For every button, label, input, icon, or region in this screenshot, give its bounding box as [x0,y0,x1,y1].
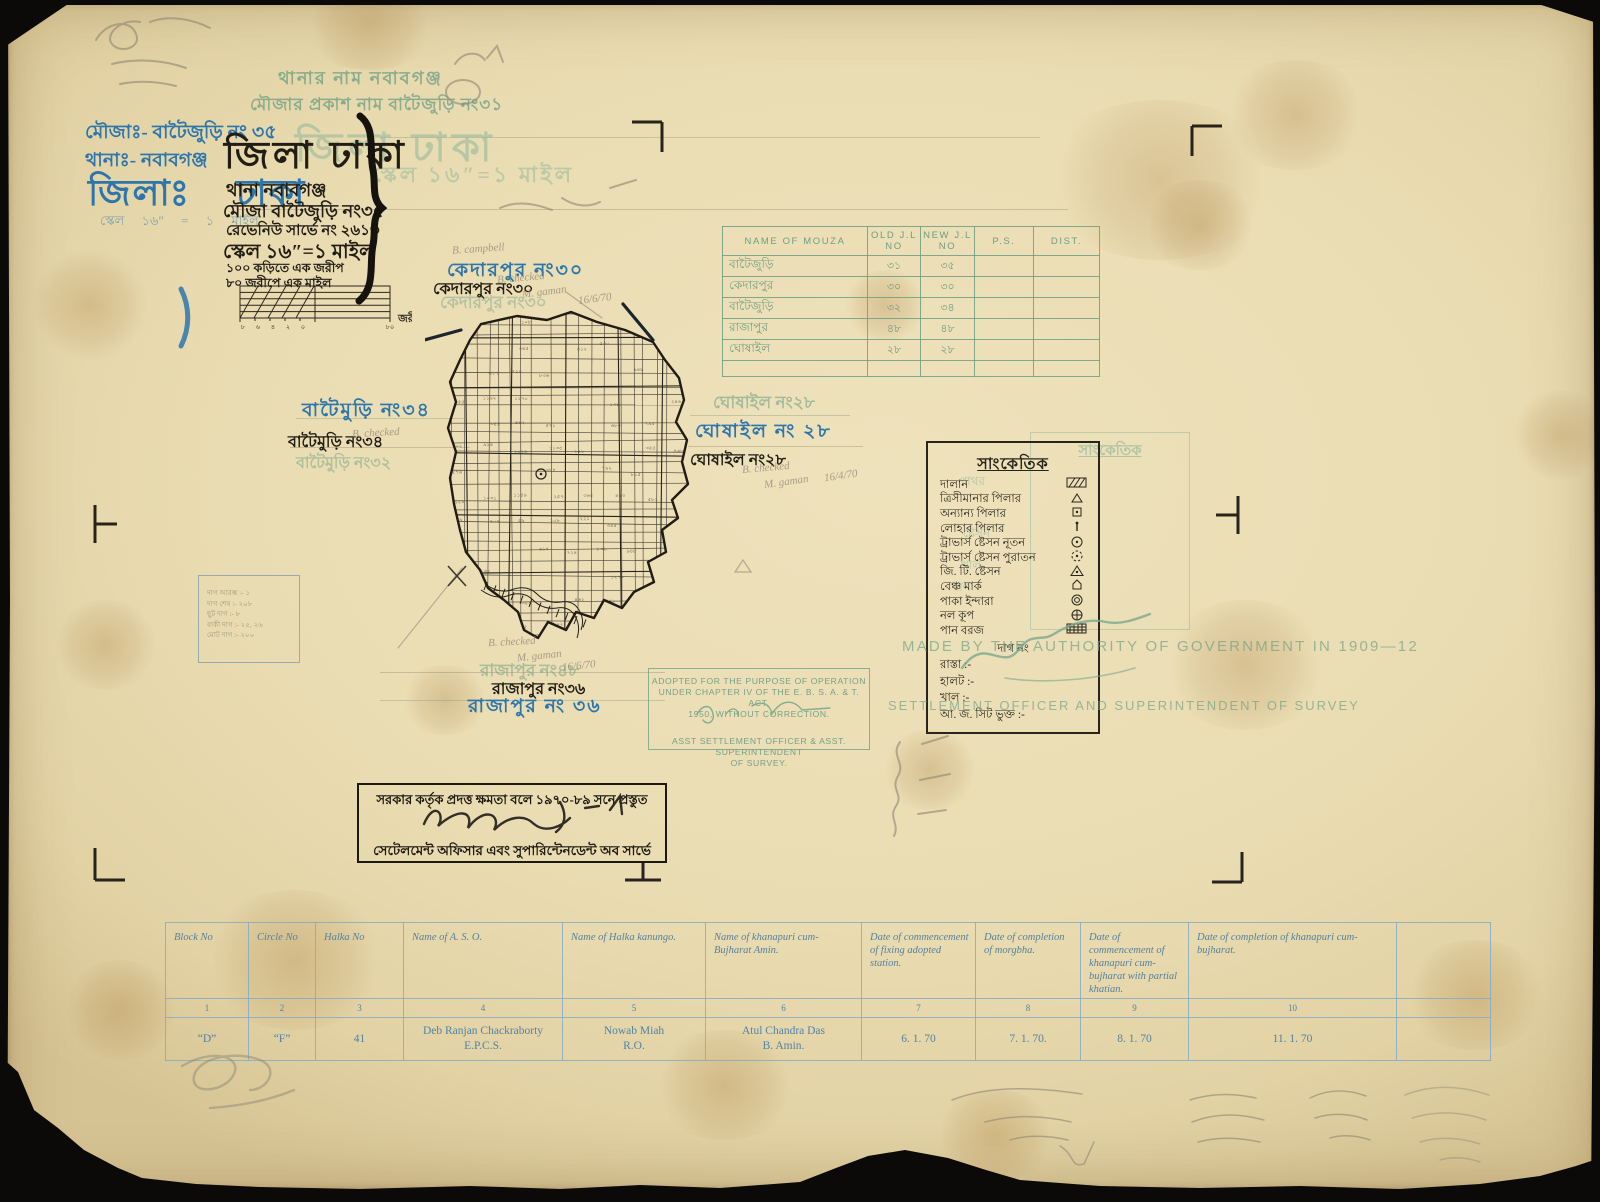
jl-number-cell: ৩৪ [921,298,975,319]
progress-table-header: Name of A. S. O. [404,923,563,999]
svg-text:৮৩৬: ৮৩৬ [539,373,550,379]
jl-number-cell: ২৮ [921,340,975,361]
jl-number-cell [1034,277,1100,298]
west-mouza-label-green: বাটৈমুড়ি নং৩২ [296,450,391,477]
jl-number-cell [975,340,1034,361]
stain [30,250,150,360]
mouza-table-row: কেদারপুর৩০৩০ [723,277,1100,298]
progress-table-colnum: 6 [706,999,862,1018]
progress-table-header: Date of commencement of khanapuri cum-bu… [1081,923,1189,999]
adopted-line: 1950, WITHOUT CORRECTION. [649,709,869,720]
svg-text:৫৩০: ৫৩০ [453,551,463,557]
stain [880,730,980,810]
svg-text:২৪৬: ২৪৬ [488,598,499,604]
mouza-jl-table: NAME OF MOUZAOLD J.L NONEW J.L NOP.S.DIS… [722,226,1100,377]
svg-text:৬১৭: ৬১৭ [539,546,549,552]
scalebar-tick: ৮ [241,324,246,331]
progress-table-value: “F” [249,1018,316,1061]
svg-text:৫৯: ৫৯ [453,318,460,324]
mouza-name-cell: ঘোষাইল [723,340,868,361]
mouza-table-header: NAME OF MOUZA [723,227,868,256]
jl-number-cell [975,361,1034,377]
scalebar-tick: ৪ [271,324,275,331]
svg-text:২৪৬: ২৪৬ [671,399,682,405]
mouza-table-row: বাটৈজুড়ি৩২৩৪ [723,298,1100,319]
svg-text:৯১৪: ৯১৪ [571,627,581,633]
jl-number-cell [975,256,1034,277]
jl-number-cell [1034,340,1100,361]
svg-text:৩৬৫: ৩৬৫ [583,493,593,499]
progress-table-colnum: 9 [1081,999,1189,1018]
svg-text:৫৩০: ৫৩০ [599,341,609,347]
jl-number-cell: ৪৮ [921,319,975,340]
svg-text:১১৩৪: ১১৩৪ [549,446,562,452]
progress-table-colnum: 8 [976,999,1081,1018]
svg-text:১০৩১: ১০৩১ [483,495,496,501]
svg-text:৯৪৮: ৯৪৮ [634,367,645,373]
svg-text:৬১৭: ৬১৭ [488,370,498,376]
legend-footer-line: রাস্তা :- [940,657,1086,674]
survey-progress-table: Block NoCircle NoHalka NoName of A. S. O… [165,922,1490,1061]
progress-table-value: 7. 1. 70. [976,1018,1081,1061]
mouza-name-cell [723,361,868,377]
adopted-line: ASST SETTLEMENT OFFICER & ASST. SUPERINT… [649,736,869,758]
jl-number-cell [975,319,1034,340]
mouza-table-row: রাজাপুর৪৮৪৮ [723,319,1100,340]
jl-number-cell: ৪৮ [868,319,921,340]
mouza-name-cell: বাটৈজুড়ি [723,298,868,319]
svg-text:৬৮৩: ৬৮৩ [453,623,464,629]
svg-text:৩৫৫: ৩৫৫ [646,445,656,451]
svg-text:১০৮: ১০৮ [521,319,532,325]
plot-note-line: বাকী দাগ :- ২৫, ২৬ [199,620,299,631]
svg-text:৫৮১: ৫৮১ [648,497,658,503]
jl-number-cell [1034,256,1100,277]
svg-text:১১৬২: ১১৬২ [483,396,496,402]
thana-name-green-stamp: থানার নাম নবাবগঞ্জ [278,64,443,95]
progress-table-value: 41 [316,1018,404,1061]
stain [1140,180,1260,270]
svg-text:৪৬২: ৪৬২ [574,597,584,603]
progress-table-colnum [1397,999,1491,1018]
svg-text:২২১: ২২১ [580,516,590,522]
mouza-table-header: DIST. [1034,227,1100,256]
mouza-table-header: P.S. [975,227,1034,256]
svg-text:৫৭৬: ৫৭৬ [452,470,463,476]
scanned-cadastral-map-sheet: থানার নাম নবাবগঞ্জ মৌজার প্রকাশ নাম বাটৈ… [0,0,1600,1202]
svg-text:১৩৮: ১৩৮ [674,575,685,581]
progress-table-colnum: 5 [563,999,706,1018]
jl-number-cell [975,277,1034,298]
plot-note-line: দাগ আরম্ভ :- ১ [199,588,299,599]
jl-number-cell: ৩১ [868,256,921,277]
jl-number-cell [921,361,975,377]
svg-text:১২৭০: ১২৭০ [514,396,528,402]
progress-table-colnum: 3 [316,999,404,1018]
svg-text:১২৭০: ১২৭০ [611,574,625,580]
legend-item: পান বরজ [928,624,1098,639]
jl-number-cell: ৩৫ [921,256,975,277]
svg-text:৯১৪: ৯১৪ [483,442,493,448]
svg-text:৭২৪: ৭২৪ [567,550,577,556]
progress-table-header: Halka No [316,923,404,999]
diagonal-scale-bar: ৮ ৬ ৪ ২ ০ ৮০ জরীপ [232,280,412,332]
svg-text:৮১৫: ৮১৫ [631,472,641,478]
cadastral-plot-map: ৫৯১০৮২২১৩৪৫৪১২৫৩০৬১৭৭২৪৮৩৬৯৪৮১০৫৫১১৬২১২৭… [425,298,695,663]
progress-table-colnum: 7 [862,999,976,1018]
stain [1510,390,1600,480]
progress-table-header: Name of Halka kanungo. [563,923,706,999]
plot-note-line: দাগ শেষ :- ২০৮ [199,599,299,610]
progress-table-value: Deb Ranjan Chackraborty E.P.C.S. [404,1018,563,1061]
svg-text:৩৪৫: ৩৪৫ [607,523,617,529]
scalebar-tick: ৮০ [386,324,394,331]
blackbox-line2: সেটেলমেন্ট অফিসার এবং সুপারিন্টেনডেন্ট অ… [359,840,665,863]
svg-text:৪৭৩: ৪৭৩ [615,493,626,499]
svg-text:৯৪৮: ৯৪৮ [626,548,637,554]
scalebar-tick: ২ [286,324,290,331]
scalebar-tick: ০ [301,324,305,331]
progress-table-header: Date of completion of morgbha. [976,923,1081,999]
stain [50,600,160,690]
progress-table-colnum: 4 [404,999,563,1018]
blackbox-line1: সরকার কর্তৃক প্রদত্ত ক্ষমতা বলে ১৯৭০-৮৯ … [359,791,665,812]
svg-text:৫৭১: ৫৭১ [546,423,556,429]
adopted-line: ADOPTED FOR THE PURPOSE OF OPERATION [649,676,869,687]
plot-note-line: মোট দাগ :- ২০০ [199,630,299,641]
pencil-annotation: B. checked [352,426,400,440]
scalebar-label: জরীপ [397,311,412,325]
government-power-stamp-box: সরকার কর্তৃক প্রদত্ত ক্ষমতা বলে ১৯৭০-৮৯ … [357,783,667,863]
plot-count-note-box: দাগ আরম্ভ :- ১ দাগ শেষ :- ২০৮ ছুট দাগ :-… [198,575,300,663]
svg-text:৭৯২: ৭৯২ [602,466,612,472]
svg-text:১০৮: ১০৮ [550,518,561,524]
pencil-annotation: B. checked [488,635,536,649]
svg-text:১০২৬: ১০২৬ [514,449,528,455]
progress-table-header: Date of completion of khanapuri cum-bujh… [1189,923,1397,999]
progress-table-value: Nowab Miah R.O. [563,1018,706,1061]
adopted-line: UNDER CHAPTER IV OF THE E. B. S. A. & T.… [649,687,869,709]
svg-text:১০২৬: ১০২৬ [676,627,690,633]
jl-number-cell [1034,361,1100,377]
svg-text:৫৯: ৫৯ [518,518,525,524]
mouza-table-row: বাটৈজুড়ি৩১৩৫ [723,256,1100,277]
svg-text:৯২৩: ৯২৩ [454,500,465,506]
progress-table-header [1397,923,1491,999]
progress-table-value: Atul Chandra Das B. Amin. [706,1018,862,1061]
legend-title: সাংকেতিক [928,451,1098,478]
adopted-stamp-box: ADOPTED FOR THE PURPOSE OF OPERATION UND… [648,668,870,750]
svg-text:৪৬২: ৪৬২ [515,420,525,426]
svg-text:৭০৭: ৭০৭ [490,519,500,525]
svg-text:৭৯৫: ৭৯৫ [645,421,655,427]
scalebar-tick: ৬ [256,324,261,331]
mouza-table-header: NEW J.L NO [921,227,975,256]
svg-text:৬৮৩: ৬৮৩ [611,423,622,429]
jl-number-cell [1034,319,1100,340]
jl-number-cell: ৩০ [868,277,921,298]
mouza-name-cell: রাজাপুর [723,319,868,340]
jl-number-cell [868,361,921,377]
svg-text:২৫৭: ২৫৭ [554,494,564,500]
progress-table-value [1397,1018,1491,1061]
progress-table-header: Name of khanapuri cum-Bujharat Amin. [706,923,862,999]
progress-table-colnum: 2 [249,999,316,1018]
east-mouza-label-blue: ঘোষাইল নং ২৮ [695,417,832,449]
legend-box: সাংকেতিক দালানত্রিসীমানার পিলারঅন্যান্য … [926,441,1100,734]
parcel-grid [437,304,689,656]
authority-stamp-line1: MADE BY THE AUTHORITY OF GOVERNMENT IN 1… [902,638,1419,655]
stain [60,960,180,1060]
svg-text:১০৫৫: ১০৫৫ [449,570,462,576]
svg-text:৭২৪: ৭২৪ [512,369,522,375]
svg-text:৮৩৬: ৮৩৬ [597,546,608,552]
mouza-table-row [723,361,1100,377]
svg-text:১০৫৫: ১০৫৫ [451,400,464,406]
progress-table-value: 6. 1. 70 [862,1018,976,1061]
progress-table-value: “D” [166,1018,249,1061]
mouza-name-cell: বাটৈজুড়ি [723,256,868,277]
progress-table-header: Circle No [249,923,316,999]
jl-number-cell [1034,298,1100,319]
progress-table-value: 11. 1. 70 [1189,1018,1397,1061]
svg-text:৬৮৪: ৬৮৪ [546,467,556,473]
stain [1220,60,1370,170]
mouza-table-header: OLD J.L NO [868,227,921,256]
south-mouza-label-blue: রাজাপুর নং ৩৬ [468,692,602,724]
progress-table-colnum: 10 [1189,999,1397,1018]
west-mouza-label-blue: বাটৈমুড়ি নং৩৪ [302,396,431,428]
svg-text:৪১২: ৪১২ [577,347,587,353]
svg-text:৩৪৫: ৩৪৫ [519,346,529,352]
mouza-name-cell: কেদারপুর [723,277,868,298]
progress-table-value: 8. 1. 70 [1081,1018,1189,1061]
svg-text:১৩৮: ১৩৮ [610,402,621,408]
jl-number-cell [975,298,1034,319]
svg-text:২৪২: ২৪২ [574,449,584,455]
svg-text:১১৪৯: ১১৪৯ [514,492,527,498]
stain [930,1090,1060,1180]
mouza-table-row: ঘোষাইল২৮২৮ [723,340,1100,361]
jl-number-cell: ২৮ [868,340,921,361]
legend-footer-line: হালট :- [940,674,1086,691]
svg-text:৩৫৪: ৩৫৪ [490,422,500,428]
progress-table-header: Date of commencement of fixing adopted s… [862,923,976,999]
authority-stamp-line2: SETTLEMENT OFFICER AND SUPERINTENDENT OF… [888,698,1360,713]
east-mouza-label-green: ঘোষাইল নং২৮ [713,390,815,418]
jl-number-cell: ৩০ [921,277,975,298]
plot-note-line: ছুট দাগ :- ৮ [199,609,299,620]
adopted-line: OF SURVEY. [649,758,869,769]
progress-table-header: Block No [166,923,249,999]
progress-table-colnum: 1 [166,999,249,1018]
jl-number-cell: ৩২ [868,298,921,319]
